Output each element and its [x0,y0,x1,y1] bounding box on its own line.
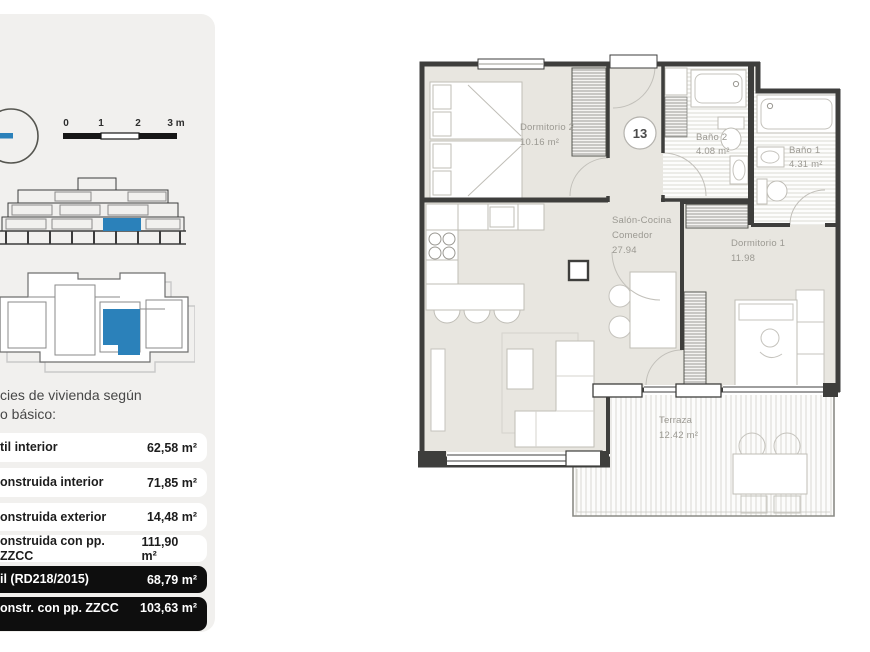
unit-badge: 13 [624,117,656,149]
room-area: 11.98 [731,253,755,264]
room-name: Comedor [612,230,652,241]
row-value: 14,48 m² [147,510,197,524]
room-name: Terraza [659,415,693,426]
unit-number: 13 [633,126,647,141]
scale-tick-0: 0 [63,118,69,129]
bed-dorm1 [735,290,824,386]
scale-tick-1: 1 [98,118,104,129]
highlighted-unit-elevation [103,218,141,231]
specs-heading-line1: cies de vivienda según [0,386,210,405]
room-name: Baño 2 [696,132,727,143]
row-value: 103,63 m² [140,601,197,615]
room-area: 4.31 m² [789,159,823,170]
scale-bar: 0 1 2 3 m [55,114,195,144]
wardrobe-dorm1-top [686,204,748,228]
scale-tick-2: 2 [135,118,141,129]
room-name: Dormitorio 1 [731,238,785,249]
specs-heading-line2: o básico: [0,405,210,424]
table-row: til interior 62,58 m² [0,433,207,462]
side-table [507,349,533,389]
room-area: 12.42 m² [659,430,698,441]
elevation-key [0,175,195,249]
table-row-highlight: il (RD218/2015) 68,79 m² [0,566,207,593]
siteplan-key [0,267,195,382]
wardrobe-dorm2 [572,68,606,156]
row-label: il (RD218/2015) [0,572,89,587]
table-row: onstruida exterior 14,48 m² [0,503,207,531]
room-name: Dormitorio 2 [520,122,574,133]
row-value: 62,58 m² [147,441,197,455]
radiator [431,349,445,431]
wardrobe-dorm1-side [684,292,706,386]
row-label: onstruida exterior [0,510,106,525]
column [569,261,588,280]
row-value: 71,85 m² [147,476,197,490]
specs-heading: cies de vivienda según o básico: [0,386,210,424]
row-value: 111,90 m² [141,535,197,563]
floorplan-drawing: 13 Dormitorio 2 10.16 m² Baño 2 4.08 m² … [410,48,870,548]
row-label: onstruida interior [0,475,103,490]
table-row: onstruida con pp. ZZCC 111,90 m² [0,535,207,562]
room-area: 4.08 m² [696,146,730,157]
table-row: onstruida interior 71,85 m² [0,468,207,497]
bar-stools [434,310,520,323]
room-name: Baño 1 [789,145,820,156]
floorplan-page: { "sidebar": { "scalebar": {"tick0":"0",… [0,0,870,652]
scale-tick-3: 3 m [167,118,184,129]
compass-icon [0,104,50,169]
room-name: Salón-Cocina [612,215,672,226]
room-area: 10.16 m² [520,137,559,148]
room-area: 27.94 [612,245,637,256]
row-label: onstr. con pp. ZZCC 8/2015) [0,601,119,646]
row-value: 68,79 m² [147,573,197,587]
specs-panel: 0 1 2 3 m [0,14,215,632]
row-label: onstruida con pp. ZZCC [0,534,141,564]
table-row-highlight: onstr. con pp. ZZCC 8/2015) 103,63 m² [0,597,207,631]
row-label: til interior [0,440,58,455]
